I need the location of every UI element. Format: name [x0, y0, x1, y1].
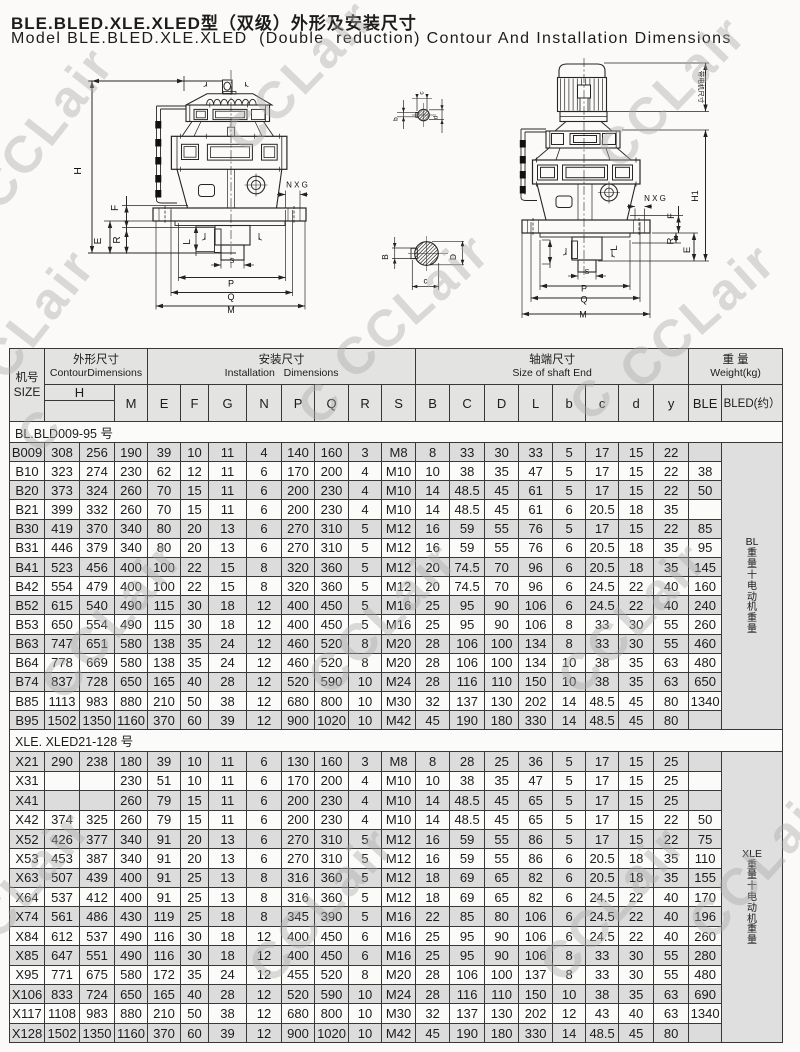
svg-text:带电机尺寸: 带电机尺寸 [697, 71, 706, 104]
svg-text:L: L [182, 239, 193, 245]
svg-text:Q: Q [227, 292, 234, 302]
svg-text:R: R [112, 236, 123, 243]
svg-text:H: H [72, 167, 84, 175]
svg-text:S: S [585, 269, 590, 276]
svg-text:Q: Q [580, 295, 587, 305]
svg-text:P: P [581, 284, 587, 294]
svg-text:c: c [419, 91, 426, 95]
svg-text:B: B [380, 254, 390, 260]
svg-text:d: d [433, 115, 440, 119]
svg-text:H1: H1 [690, 190, 700, 202]
svg-text:M: M [227, 305, 235, 315]
svg-text:F: F [110, 205, 121, 211]
svg-text:N X G: N X G [286, 181, 308, 190]
svg-text:D: D [448, 254, 458, 260]
svg-text:S: S [230, 258, 235, 265]
svg-text:c: c [424, 277, 428, 286]
svg-text:M: M [579, 310, 587, 320]
svg-text:L: L [609, 245, 620, 250]
svg-text:P: P [228, 279, 234, 289]
svg-text:b: b [393, 117, 400, 121]
svg-text:F: F [666, 213, 677, 219]
svg-text:E: E [93, 237, 104, 244]
svg-text:E: E [682, 247, 693, 253]
svg-text:R: R [666, 237, 677, 244]
svg-text:N X G: N X G [644, 194, 666, 203]
